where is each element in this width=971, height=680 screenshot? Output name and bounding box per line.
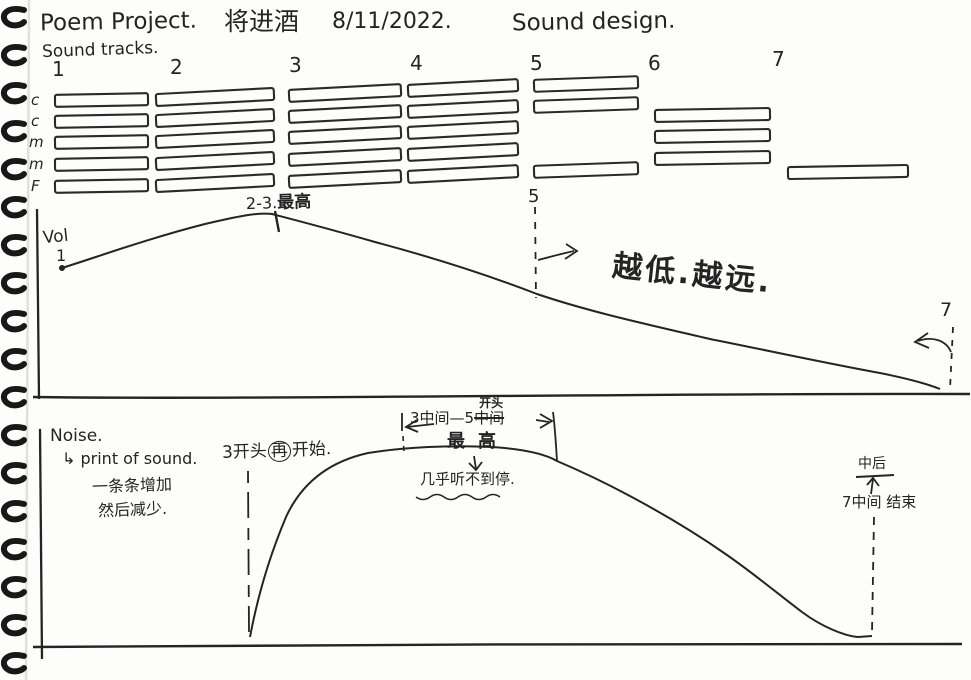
spiral-coil [4,465,24,481]
spiral-coil [4,199,24,215]
spiral-coil [4,389,24,405]
track-bar [534,76,638,92]
spiral-binding [4,9,24,671]
track-bar [156,152,274,170]
notebook-page: Poem Project. 将进酒 8/11/2022. Sound desig… [0,0,971,680]
spiral-coil [4,47,24,63]
volume-peak-tick [275,211,279,232]
spiral-coil [4,313,24,329]
volume-start-dot [59,265,65,271]
track-bar [408,100,518,118]
spiral-coil [4,275,24,291]
volume-curve [62,214,940,389]
spiral-coil [4,655,24,671]
noise-restart-note: 3开头再开始. [222,439,332,463]
noise-end-note-top: 中后 [858,457,886,472]
noise-quiet-note: 几乎听不到停. [420,471,515,488]
track-bar [55,135,148,149]
spiral-coil [4,579,24,595]
page-title-english: Poem Project. [40,9,197,37]
track-bar [408,121,518,139]
track-bar [289,148,401,166]
track-column-number: 3 [289,54,302,76]
track-bar [156,130,274,148]
sketch-strokes-layer [0,0,971,680]
spiral-coil [4,541,24,557]
track-bars-grid [55,76,908,193]
track-bar [156,109,274,127]
track-bar [55,157,148,171]
track-bar [408,165,518,183]
track-bar [655,129,770,143]
track-bar [156,88,274,106]
track-column-number: 4 [410,52,423,74]
track-bar [534,162,638,178]
volume-y-axis [37,209,39,399]
page-title-chinese: 将进酒 [224,8,299,36]
volume-marker-7: 7 [940,300,952,321]
paper-edge [26,0,29,680]
wavy-underline [416,495,500,500]
spiral-coil [4,237,24,253]
noise-definition: ↳ print of sound. [62,450,197,468]
spiral-coil [4,161,24,177]
volume-axis-label: Vol [42,227,69,248]
noise-note-increase: 一条条增加 [92,476,173,496]
track-bar [55,114,148,128]
spiral-coil [4,9,24,25]
volume-start-marker: 1 [56,247,66,265]
noise-note-decrease: 然后减少. [98,500,168,520]
restart-note-circled: 再 [267,441,291,462]
span-right-arrow-shaft [536,420,549,422]
volume-peak-prefix: 2-3. [246,193,278,213]
spiral-coil [4,617,24,633]
track-bar [655,108,770,122]
track-bar [289,105,401,123]
restart-note-post: 开始. [291,439,331,460]
marker5-dashed-line [535,207,536,298]
track-column-number: 6 [648,52,661,74]
span-label-pre: 3中间—5 [410,409,474,427]
volume-peak-text: 最高 [277,192,312,213]
noise-end-dashed-line [872,517,874,633]
span-left-dashes [403,436,404,453]
spiral-coil [4,503,24,519]
spiral-coil [4,351,24,367]
volume-marker-5: 5 [528,187,539,207]
track-bar [788,165,908,179]
span-label-correction: 开头 [479,397,503,410]
span-right-endbar [553,412,557,461]
track-bar [55,179,148,193]
page-subtitle: Sound design. [512,9,676,37]
track-row-label: F [31,178,40,195]
track-column-number: 5 [530,52,543,74]
spiral-coil [4,427,24,443]
track-row-label: m [29,156,44,173]
noise-baseline [33,644,962,647]
track-bar [534,97,638,113]
spiral-coil [4,123,24,139]
track-column-number: 1 [52,58,65,80]
track-row-label: m [29,134,44,151]
track-column-number: 2 [170,56,183,78]
track-bar [408,79,518,97]
track-bar [655,151,770,165]
track-row-label: c [31,92,39,109]
noise-y-axis [40,429,42,659]
track-bar [156,174,274,192]
end-note-underline [856,475,894,477]
volume-peak-label: 2-3.最高 [246,193,312,214]
span-label-struck: 中间 [474,409,504,427]
track-bar [289,170,401,188]
track-bar [408,143,518,161]
noise-end-note: 7中间 结束 [842,494,916,511]
noise-definition-text: print of sound. [81,449,198,468]
track-row-label: c [31,113,39,130]
return-arrow-icon: ↳ [62,449,75,468]
noise-span-label: 3中间—5中间开头 [410,410,504,427]
track-bar [55,93,148,107]
marker5-arrow-shaft [538,251,574,260]
spiral-coil [4,85,24,101]
page-date: 8/11/2022. [332,10,452,34]
noise-axis-label: Noise. [50,427,103,446]
restart-note-pre: 3开头 [222,441,267,463]
track-bar [289,84,401,102]
noise-curve [250,446,872,637]
marker7-dashed-line [950,327,953,389]
track-column-number: 7 [772,48,785,70]
noise-start-dashed-line [248,471,249,634]
track-bar [289,126,401,144]
noise-peak-label: 最高 [447,432,509,452]
